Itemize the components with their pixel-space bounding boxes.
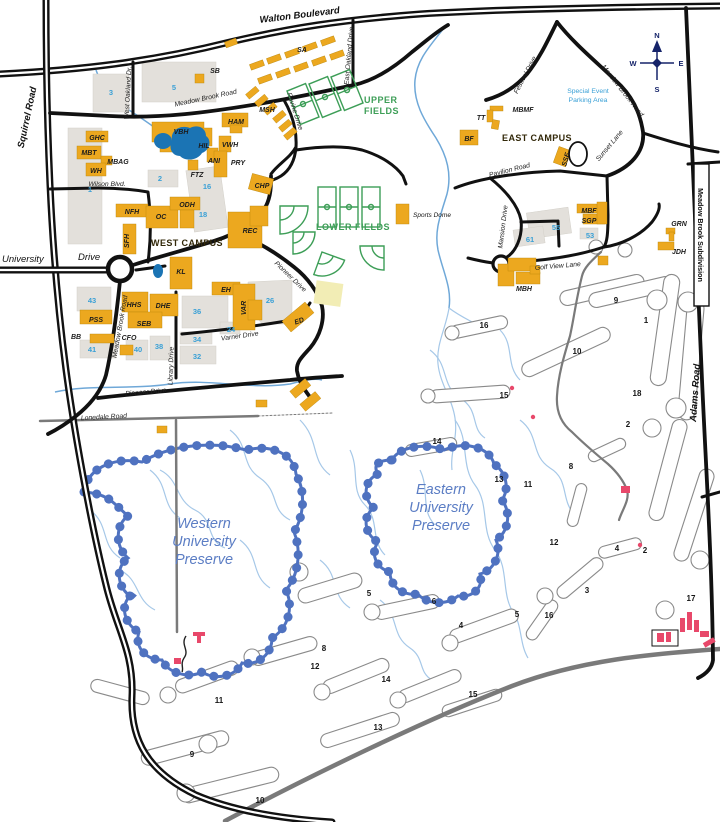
building-label-eh: EH bbox=[221, 287, 232, 294]
compass-e: E bbox=[678, 59, 683, 68]
building-label-vbh: VBH bbox=[174, 129, 190, 136]
parking-lot-43: 43 bbox=[88, 296, 96, 305]
golf-hole-number: 8 bbox=[569, 462, 574, 471]
building-label-nfh: NFH bbox=[125, 209, 140, 216]
golf-hole-number: 4 bbox=[459, 621, 464, 630]
road-label-wilson-blvd: Wilson Blvd. bbox=[88, 181, 125, 188]
building-label-bf: BF bbox=[464, 136, 474, 143]
building-label-sfh: SFH bbox=[124, 233, 131, 248]
baseball-field bbox=[360, 246, 384, 270]
golf-hole-number: 14 bbox=[382, 675, 391, 684]
golf-hole-number: 9 bbox=[614, 296, 619, 305]
golf-hole-number: 8 bbox=[322, 644, 327, 653]
road-label-university: University bbox=[2, 254, 45, 265]
road-label-pioneer-drive-lower: Pioneer Drive bbox=[125, 387, 167, 398]
golf-hole-number: 16 bbox=[545, 611, 554, 620]
golf-hole-number: 5 bbox=[515, 610, 520, 619]
golf-hole-number: 13 bbox=[374, 723, 383, 732]
area-label-special-event-1: Special Event bbox=[567, 88, 609, 95]
building-label-sa: SA bbox=[297, 47, 307, 54]
building-label-jdh: JDH bbox=[672, 249, 687, 256]
building-label-odh: ODH bbox=[179, 202, 196, 209]
building-label-mbmf: MBMF bbox=[513, 107, 535, 114]
golf-hole-number: 10 bbox=[256, 796, 265, 805]
parking-lot-24: 24 bbox=[227, 325, 236, 334]
golf-hole-number: 13 bbox=[495, 475, 504, 484]
parking-lot-26: 26 bbox=[266, 296, 274, 305]
golf-hole-number: 3 bbox=[585, 586, 590, 595]
western-preserve-label-1: Western bbox=[177, 516, 231, 532]
building-label-wh: WH bbox=[90, 168, 103, 175]
baseball-field bbox=[280, 206, 308, 234]
building-label-ham: HAM bbox=[228, 119, 244, 126]
campus-map-page: N E S W Meadow Brook Subdivision Walton … bbox=[0, 0, 720, 822]
golf-hole-number: 9 bbox=[190, 750, 195, 759]
golf-hole-number: 16 bbox=[480, 321, 489, 330]
parking-lot-36: 36 bbox=[193, 307, 201, 316]
building-label-hhs: HHS bbox=[127, 302, 142, 309]
parking-lot-2: 2 bbox=[158, 174, 162, 183]
golf-hole-number: 15 bbox=[500, 391, 509, 400]
building-label-mbf: MBF bbox=[581, 208, 597, 215]
building-label-grn: GRN bbox=[671, 221, 688, 228]
road-label-meadow-brook-subdivision: Meadow Brook Subdivision bbox=[696, 188, 705, 282]
compass-north-arrow bbox=[652, 40, 662, 52]
road-label-golf-view-lane: Golf View Lane bbox=[535, 261, 582, 272]
area-label-upper-fields-2: FIELDS bbox=[364, 106, 399, 116]
parking-lot-55: 55 bbox=[552, 223, 560, 232]
parking-lot-34: 34 bbox=[193, 335, 202, 344]
area-label-upper-fields-1: UPPER bbox=[364, 95, 398, 105]
building-label-mbag: MBAG bbox=[107, 159, 129, 166]
university-drive-roundabout bbox=[108, 257, 132, 281]
building-label-pry: PRY bbox=[231, 160, 247, 167]
compass-s: S bbox=[654, 85, 659, 94]
golf-hole-number: 4 bbox=[615, 544, 620, 553]
golf-hole-number: 5 bbox=[367, 589, 372, 598]
minor-roads-layer bbox=[40, 252, 720, 821]
building-label-pss: PSS bbox=[89, 317, 103, 324]
building-label-mbh: MBH bbox=[516, 286, 533, 293]
building-label-chp: CHP bbox=[255, 183, 270, 190]
subdivision-sign: Meadow Brook Subdivision bbox=[694, 164, 709, 306]
baseball-field bbox=[314, 252, 345, 283]
road-label-squirrel-road: Squirrel Road bbox=[16, 86, 40, 149]
golf-hole-number: 17 bbox=[687, 594, 696, 603]
area-label-special-event-2: Parking Area bbox=[569, 97, 608, 104]
golf-hole-number: 14 bbox=[433, 437, 442, 446]
building-label-tt: TT bbox=[477, 115, 486, 122]
building-label-bb: BB bbox=[71, 334, 81, 341]
building-label-hil: HIL bbox=[198, 143, 209, 150]
area-label-east-campus: EAST CAMPUS bbox=[502, 133, 572, 143]
building-label-cfo: CFO bbox=[122, 335, 137, 342]
golf-hole-number: 2 bbox=[643, 546, 648, 555]
building-label-oc: OC bbox=[156, 214, 167, 221]
golf-hole-number: 12 bbox=[550, 538, 559, 547]
parking-lot-38: 38 bbox=[155, 342, 163, 351]
building-label-dhe: DHE bbox=[156, 303, 171, 310]
building-label-sb: SB bbox=[210, 68, 220, 75]
area-label-sports-dome: Sports Dome bbox=[413, 212, 451, 219]
building-label-mbt: MBT bbox=[81, 150, 97, 157]
road-label-sunset-lane: Sunset Lane bbox=[595, 129, 625, 163]
building-label-ftz: FTZ bbox=[191, 172, 205, 179]
compass-w: W bbox=[629, 59, 637, 68]
building-label-vwh: VWH bbox=[222, 142, 239, 149]
western-preserve-label-2: University bbox=[172, 534, 236, 550]
golf-hole-number: 11 bbox=[215, 696, 224, 705]
roads-layer bbox=[0, 0, 720, 822]
parking-lot-61: 61 bbox=[526, 235, 534, 244]
parking-lot-5: 5 bbox=[172, 83, 176, 92]
golf-hole-number: 1 bbox=[644, 316, 649, 325]
golf-hole-number: 10 bbox=[573, 347, 582, 356]
building-label-sgp: SGP bbox=[582, 218, 597, 225]
golf-hole-number: 12 bbox=[311, 662, 320, 671]
building-label-rec: REC bbox=[243, 228, 259, 235]
golf-hole-number: 6 bbox=[432, 597, 437, 606]
road-label-library-drive: Library Drive bbox=[167, 346, 175, 385]
golf-hole-number: 18 bbox=[633, 389, 642, 398]
road-label-festival-drive: Festival Drive bbox=[513, 55, 539, 95]
golf-hole-number: 11 bbox=[524, 480, 533, 489]
parking-lot-3: 3 bbox=[109, 88, 113, 97]
parking-lot-16: 16 bbox=[203, 182, 211, 191]
road-label-university-drive: Drive bbox=[78, 252, 100, 263]
campus-map: N E S W Meadow Brook Subdivision Walton … bbox=[0, 0, 720, 822]
area-label-west-campus: WEST CAMPUS bbox=[151, 238, 223, 248]
compass-rose: N E S W bbox=[629, 31, 683, 94]
building-label-var: VAR bbox=[241, 301, 248, 315]
building-label-msh: MSH bbox=[259, 107, 276, 114]
building-label-seb: SEB bbox=[137, 321, 151, 328]
building-label-ghc: GHC bbox=[89, 135, 106, 142]
road-label-mansion-drive: Mansion Drive bbox=[497, 205, 509, 249]
eastern-preserve-label-3: Preserve bbox=[412, 518, 470, 534]
practice-field bbox=[313, 280, 343, 307]
parking-lot-53: 53 bbox=[586, 231, 594, 240]
parking-lot-1: 1 bbox=[88, 185, 92, 194]
parking-lot-41: 41 bbox=[88, 345, 96, 354]
golf-hole-number: 15 bbox=[469, 690, 478, 699]
parking-lot-32: 32 bbox=[193, 352, 201, 361]
building-label-ani: ANI bbox=[207, 158, 221, 165]
golf-hole-number: 2 bbox=[626, 420, 631, 429]
eastern-preserve-label-2: University bbox=[409, 500, 473, 516]
parking-lot-18: 18 bbox=[199, 210, 207, 219]
east-campus-oval bbox=[569, 142, 587, 166]
road-label-lonedale-road: Lonedale Road bbox=[81, 413, 128, 422]
area-label-lower-fields: LOWER FIELDS bbox=[316, 222, 390, 232]
building-label-kl: KL bbox=[176, 269, 185, 276]
compass-n: N bbox=[654, 31, 659, 40]
baseball-field bbox=[293, 232, 315, 254]
parking-lot-40: 40 bbox=[134, 345, 142, 354]
eastern-preserve-label-1: Eastern bbox=[416, 482, 466, 498]
western-preserve-label-3: Preserve bbox=[175, 552, 233, 568]
